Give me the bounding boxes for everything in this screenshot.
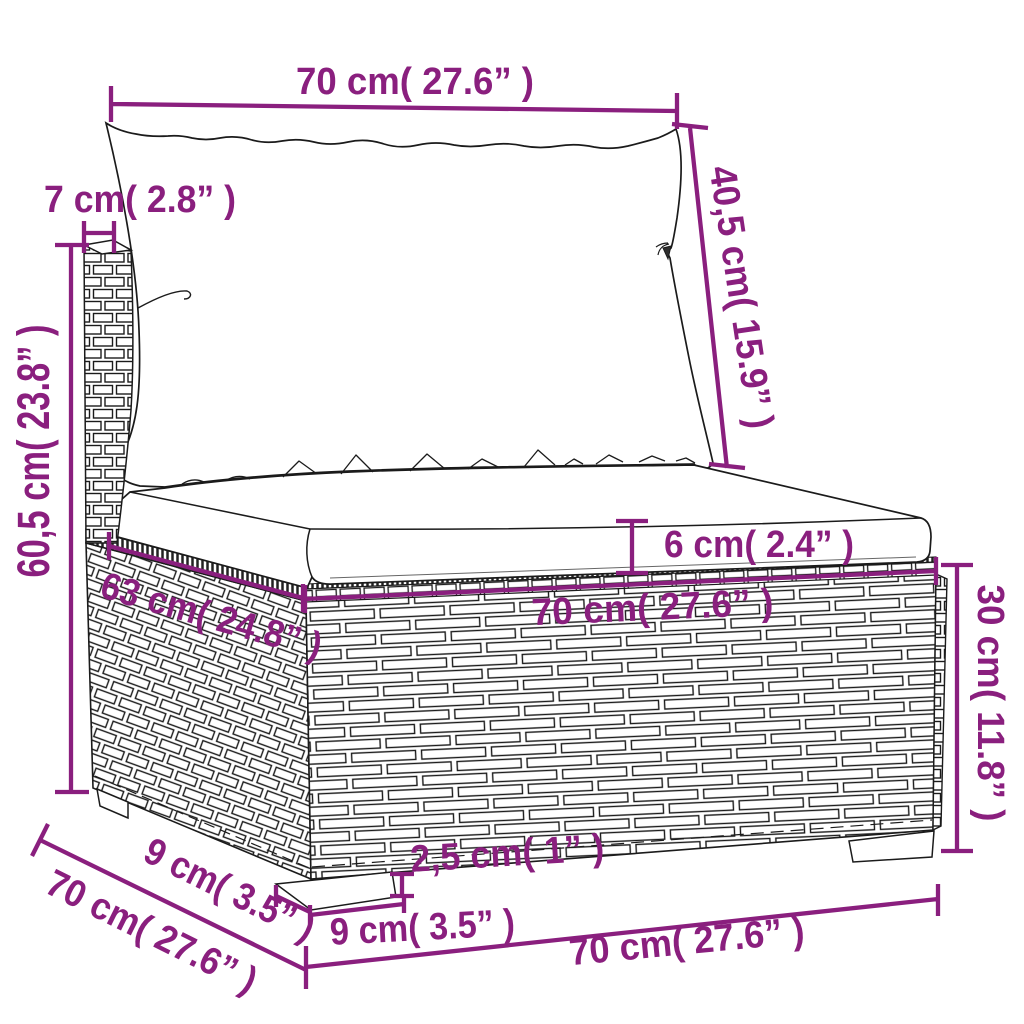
svg-text:60,5 cm( 23.8” ): 60,5 cm( 23.8” ): [8, 325, 59, 578]
svg-text:6 cm( 2.4” ): 6 cm( 2.4” ): [664, 524, 854, 566]
svg-text:30 cm( 11.8” ): 30 cm( 11.8” ): [969, 585, 1011, 822]
svg-text:70 cm( 27.6” ): 70 cm( 27.6” ): [296, 61, 534, 103]
svg-text:7 cm( 2.8” ): 7 cm( 2.8” ): [44, 179, 236, 221]
